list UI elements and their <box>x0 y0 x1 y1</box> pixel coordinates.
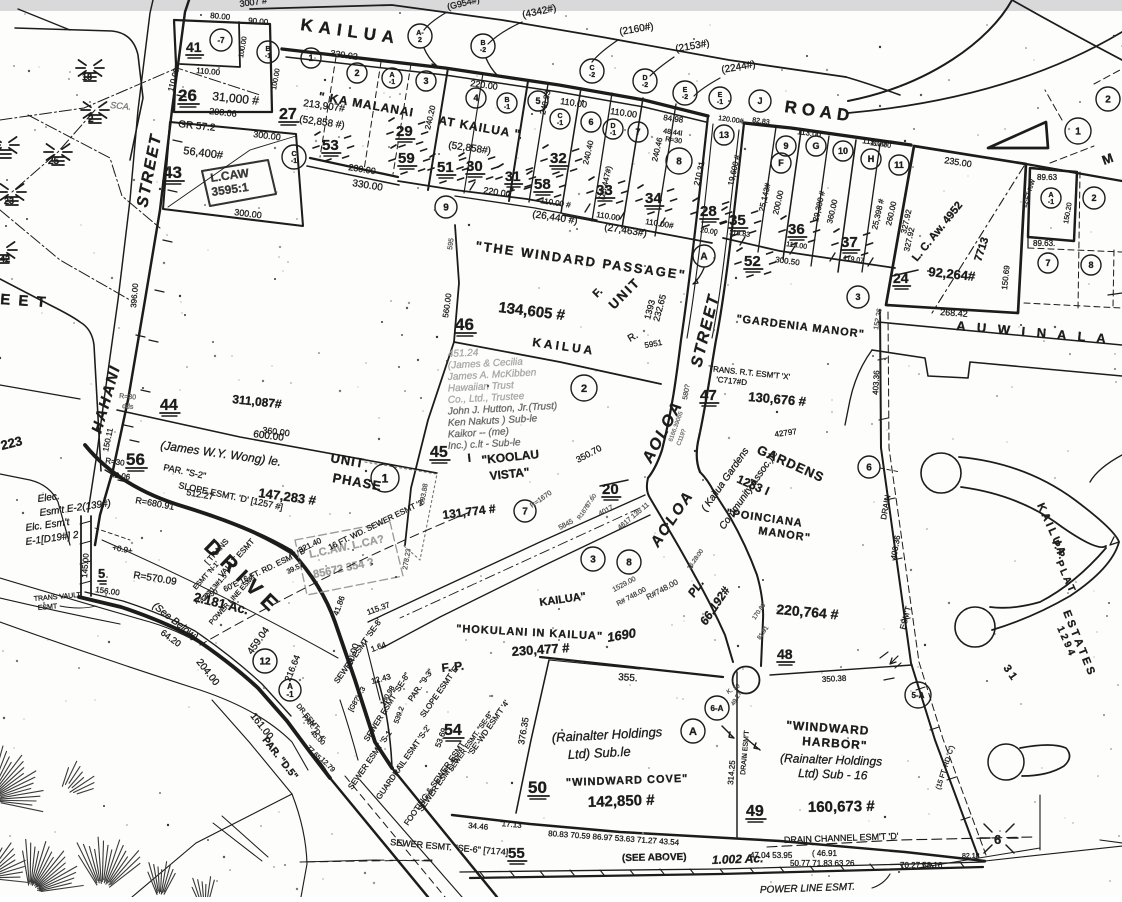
svg-text:-1: -1 <box>717 99 723 106</box>
svg-text:F: F <box>778 158 784 168</box>
svg-text:145.00: 145.00 <box>80 553 91 579</box>
svg-text:A-: A- <box>416 30 424 37</box>
svg-text:A: A <box>689 726 697 738</box>
svg-text:59: 59 <box>398 150 415 167</box>
svg-text:2: 2 <box>1091 193 1096 203</box>
svg-text:25: 25 <box>48 156 60 167</box>
svg-text:-1: -1 <box>1048 199 1054 206</box>
svg-text:8: 8 <box>676 157 682 168</box>
svg-text:56: 56 <box>126 450 145 469</box>
svg-text:53: 53 <box>322 137 339 154</box>
svg-text:89.63: 89.63 <box>1037 173 1058 182</box>
svg-text:A: A <box>700 252 707 263</box>
svg-text:451.24: 451.24 <box>448 347 480 360</box>
svg-text:37: 37 <box>841 234 858 251</box>
svg-text:7: 7 <box>635 127 640 137</box>
svg-text:dds: dds <box>122 403 134 411</box>
svg-text:6: 6 <box>588 117 593 127</box>
svg-text:9: 9 <box>783 141 788 151</box>
svg-text:8: 8 <box>1088 260 1093 270</box>
svg-text:50: 50 <box>528 778 547 797</box>
svg-text:142,850 #: 142,850 # <box>588 792 656 811</box>
svg-text:E: E <box>718 92 723 99</box>
svg-text:F. P.: F. P. <box>441 659 465 675</box>
svg-text:36: 36 <box>788 221 805 238</box>
svg-text:18: 18 <box>82 72 92 82</box>
svg-text:35: 35 <box>729 212 746 229</box>
svg-text:'17.13: '17.13 <box>500 819 523 830</box>
svg-text:B: B <box>265 46 270 53</box>
svg-text:54: 54 <box>444 722 462 739</box>
svg-text:2: 2 <box>581 383 587 395</box>
svg-text:89.63.: 89.63. <box>1033 239 1055 248</box>
svg-text:42: 42 <box>0 254 10 264</box>
svg-text:52: 52 <box>744 253 761 270</box>
svg-text:A: A <box>389 72 394 79</box>
svg-text:-7: -7 <box>217 36 225 45</box>
svg-text:-2: -2 <box>642 82 648 89</box>
svg-text:6-A: 6-A <box>711 704 724 713</box>
svg-text:44: 44 <box>160 397 178 414</box>
svg-text:2: 2 <box>418 37 422 44</box>
svg-text:-2: -2 <box>682 94 688 101</box>
svg-text:7: 7 <box>522 507 528 518</box>
svg-text:51: 51 <box>437 159 454 176</box>
svg-text:7: 7 <box>1045 258 1050 268</box>
svg-text:6: 6 <box>866 463 872 474</box>
svg-text:49: 49 <box>746 803 764 820</box>
svg-text:350.38: 350.38 <box>822 674 847 684</box>
svg-text:-1: -1 <box>286 690 294 699</box>
svg-text:B: B <box>480 40 485 47</box>
svg-text:47.04 53.95: 47.04 53.95 <box>750 851 793 860</box>
svg-text:-2: -2 <box>480 47 486 54</box>
svg-text:-1: -1 <box>557 120 563 127</box>
svg-text:1: 1 <box>382 471 389 485</box>
svg-text:1: 1 <box>1075 127 1081 138</box>
svg-text:D: D <box>642 75 647 82</box>
svg-text:10: 10 <box>838 146 848 156</box>
svg-text:1: 1 <box>308 53 313 63</box>
svg-text:32: 32 <box>550 150 567 167</box>
svg-text:( 46.91: ( 46.91 <box>812 849 837 858</box>
svg-text:Ltd) Sub - 16: Ltd) Sub - 16 <box>798 766 868 782</box>
svg-text:58: 58 <box>534 176 551 193</box>
svg-text:2: 2 <box>1105 95 1111 106</box>
svg-text:G: G <box>812 141 819 151</box>
svg-text:47: 47 <box>700 387 717 404</box>
svg-text:2: 2 <box>354 68 359 78</box>
svg-text:C: C <box>589 65 594 72</box>
svg-text:6: 6 <box>994 832 1001 847</box>
svg-text:-2: -2 <box>589 72 595 79</box>
svg-text:355.: 355. <box>618 672 638 684</box>
svg-text:31: 31 <box>505 168 521 184</box>
svg-text:34.46: 34.46 <box>468 821 489 832</box>
svg-text:C: C <box>557 113 562 120</box>
svg-text:J: J <box>757 96 762 106</box>
svg-text:90.00: 90.00 <box>248 16 269 27</box>
svg-text:-1: -1 <box>504 104 510 111</box>
svg-text:41: 41 <box>186 39 202 55</box>
svg-text:B: B <box>504 97 509 104</box>
svg-text:3: 3 <box>590 555 596 566</box>
svg-text:-1: -1 <box>291 158 297 165</box>
svg-text:-1: -1 <box>610 130 616 137</box>
svg-text:268.42: 268.42 <box>940 307 968 319</box>
svg-text:23: 23 <box>4 196 14 206</box>
svg-text:-1: -1 <box>265 53 271 60</box>
svg-text:5-A: 5-A <box>912 691 925 700</box>
svg-text:(SEE ABOVE): (SEE ABOVE) <box>622 852 687 864</box>
svg-text:13: 13 <box>719 130 729 140</box>
svg-text:-1: -1 <box>389 79 395 86</box>
svg-text:4: 4 <box>473 93 478 103</box>
svg-text:160,673 #: 160,673 # <box>808 798 876 816</box>
svg-text:46: 46 <box>455 315 474 334</box>
svg-text:27: 27 <box>279 106 297 123</box>
svg-text:R=30: R=30 <box>119 393 137 401</box>
svg-text:SCA.: SCA. <box>110 100 132 112</box>
svg-text:45: 45 <box>430 444 448 461</box>
svg-text:11: 11 <box>894 160 904 170</box>
svg-text:3: 3 <box>855 292 860 302</box>
svg-text:48: 48 <box>777 646 793 662</box>
svg-text:9: 9 <box>443 203 449 214</box>
svg-text:D: D <box>610 123 615 130</box>
svg-text:5: 5 <box>98 566 105 581</box>
svg-text:H: H <box>868 154 875 164</box>
svg-text:34: 34 <box>645 190 662 207</box>
svg-text:12: 12 <box>259 657 271 668</box>
svg-text:C: C <box>291 151 296 158</box>
svg-text:8: 8 <box>626 558 632 569</box>
svg-text:2: 2 <box>88 114 94 125</box>
svg-text:A: A <box>1048 192 1053 199</box>
svg-text:30: 30 <box>466 158 483 175</box>
svg-text:26: 26 <box>178 86 197 105</box>
svg-text:29: 29 <box>396 123 413 140</box>
svg-text:80.00: 80.00 <box>210 11 231 22</box>
svg-text:3: 3 <box>423 76 428 86</box>
svg-text:28: 28 <box>700 203 717 220</box>
svg-text:43: 43 <box>163 163 182 182</box>
svg-text:E: E <box>683 87 688 94</box>
svg-text:403.36: 403.36 <box>871 370 881 395</box>
svg-text:E E T: E E T <box>0 291 48 311</box>
svg-text:55: 55 <box>508 845 525 862</box>
